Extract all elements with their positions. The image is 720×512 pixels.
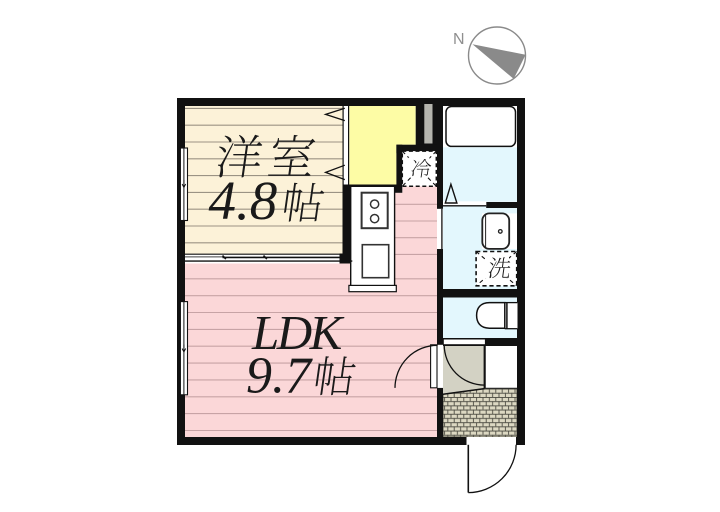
svg-text:9.7: 9.7	[246, 347, 313, 404]
svg-text:N: N	[453, 31, 465, 48]
svg-text:4.8: 4.8	[209, 170, 278, 231]
